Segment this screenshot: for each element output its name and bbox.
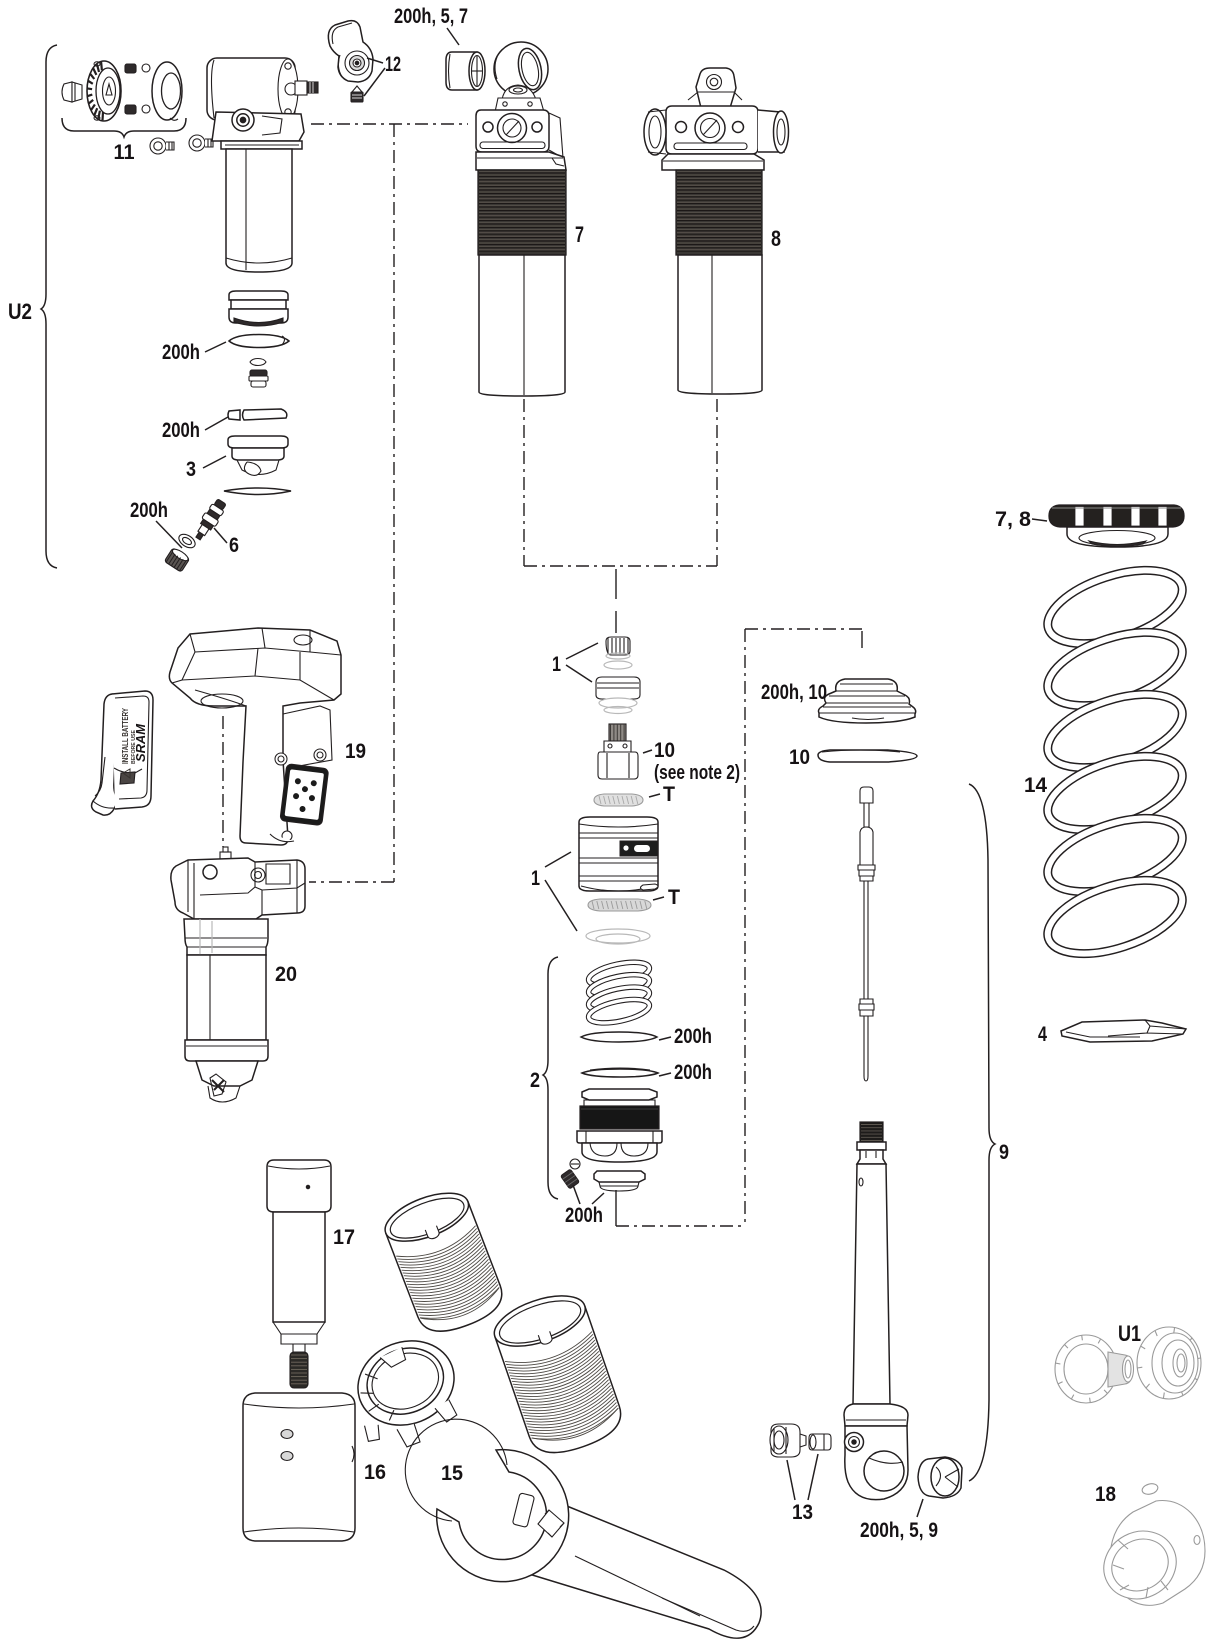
svg-text:3: 3 — [186, 458, 196, 481]
svg-text:T: T — [663, 783, 675, 806]
svg-text:200h, 5, 9: 200h, 5, 9 — [860, 1519, 938, 1542]
svg-text:8: 8 — [771, 226, 781, 251]
svg-text:SRAM: SRAM — [133, 723, 148, 762]
svg-text:10: 10 — [789, 746, 810, 769]
svg-text:12: 12 — [385, 53, 401, 76]
svg-text:18: 18 — [1095, 1483, 1116, 1506]
svg-text:2: 2 — [530, 1069, 540, 1092]
svg-text:15: 15 — [441, 1462, 463, 1485]
svg-text:U1: U1 — [1118, 1321, 1141, 1346]
svg-text:200h: 200h — [674, 1025, 712, 1048]
svg-text:9: 9 — [999, 1141, 1009, 1164]
svg-text:17: 17 — [333, 1226, 355, 1249]
svg-text:7: 7 — [575, 222, 584, 247]
svg-text:200h, 10: 200h, 10 — [761, 681, 827, 704]
svg-text:1: 1 — [531, 867, 540, 890]
svg-text:4: 4 — [1038, 1023, 1047, 1046]
svg-text:200h: 200h — [674, 1061, 712, 1084]
svg-text:14: 14 — [1024, 774, 1047, 797]
svg-text:13: 13 — [792, 1501, 813, 1524]
svg-text:10: 10 — [654, 739, 675, 762]
svg-text:U2: U2 — [8, 299, 32, 324]
svg-text:7, 8: 7, 8 — [995, 508, 1031, 531]
svg-text:T: T — [668, 886, 680, 909]
svg-text:11: 11 — [114, 141, 135, 164]
svg-text:200h: 200h — [162, 341, 200, 364]
svg-text:200h: 200h — [130, 499, 168, 522]
svg-text:INSTALL BATTERY: INSTALL BATTERY — [121, 707, 130, 764]
svg-text:6: 6 — [229, 534, 239, 557]
svg-text:20: 20 — [275, 963, 297, 986]
svg-text:200h, 5, 7: 200h, 5, 7 — [394, 5, 468, 28]
svg-text:16: 16 — [364, 1461, 386, 1484]
svg-text:(see note 2): (see note 2) — [654, 762, 740, 784]
svg-text:200h: 200h — [565, 1204, 603, 1227]
svg-text:200h: 200h — [162, 419, 200, 442]
svg-text:19: 19 — [345, 740, 366, 763]
svg-text:1: 1 — [552, 653, 561, 676]
